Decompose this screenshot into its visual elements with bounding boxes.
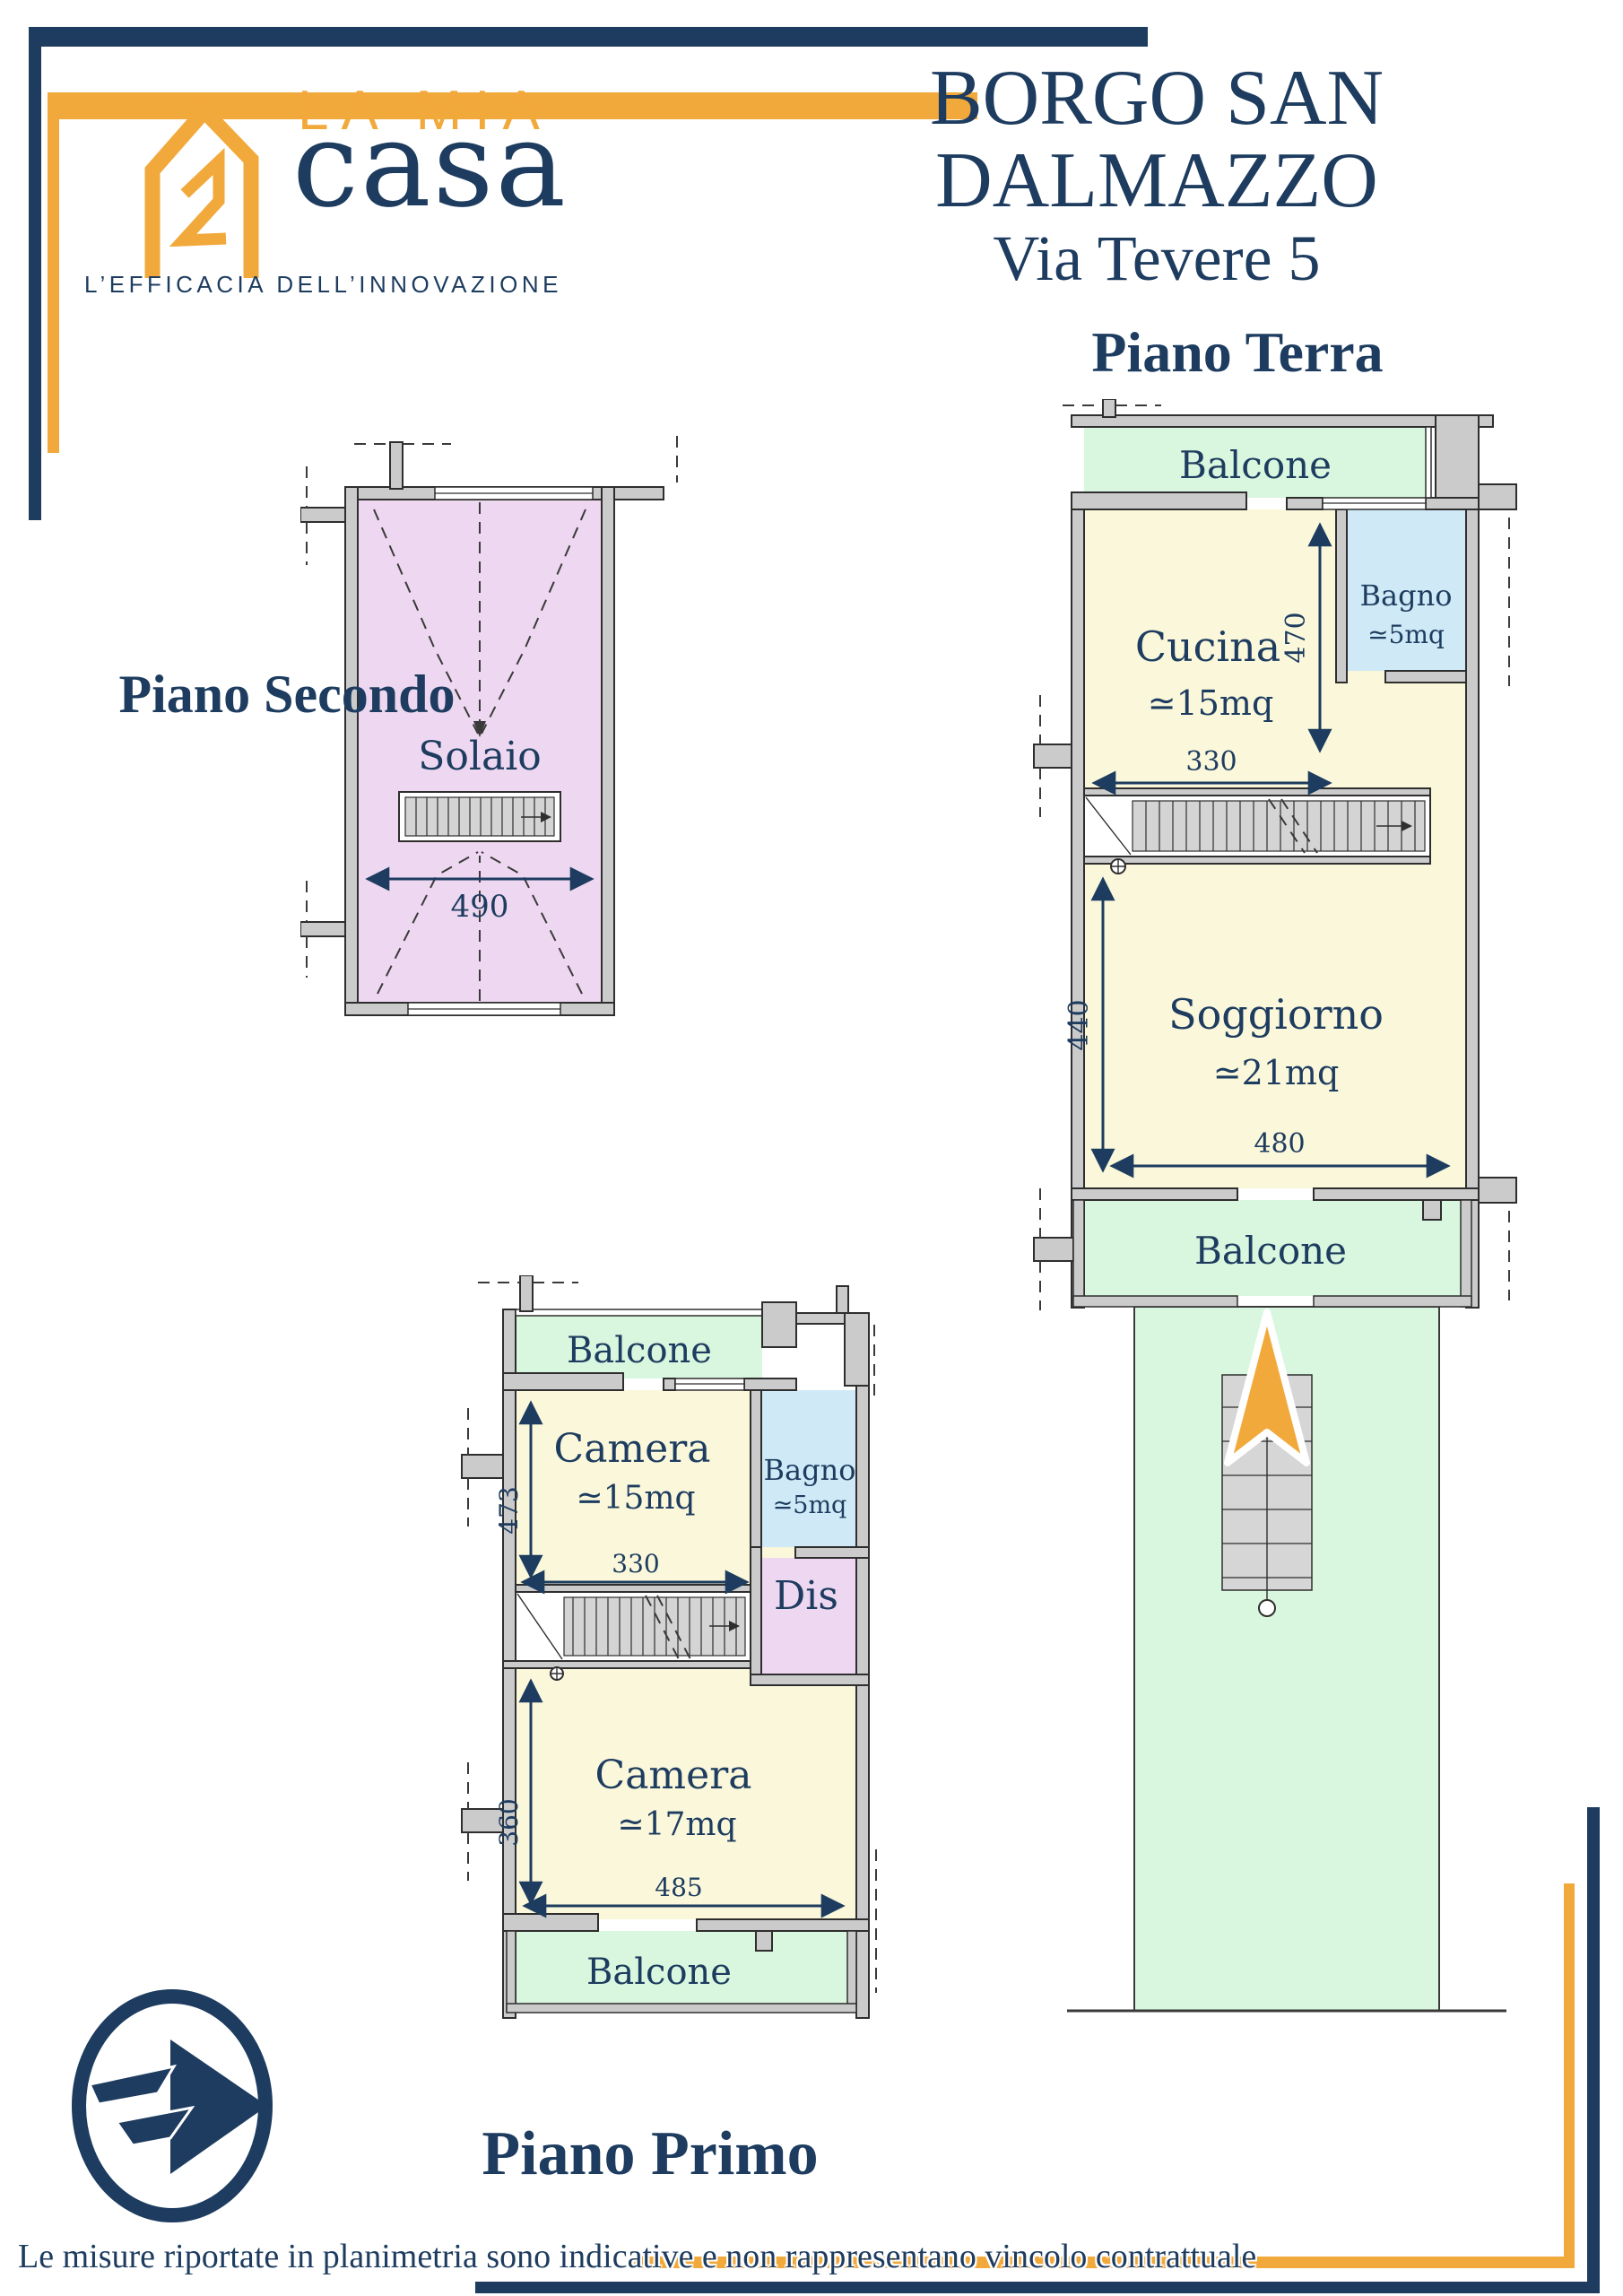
room-label-balcone-top: Balcone (567, 1330, 712, 1371)
room-size-value: 15mq (1176, 683, 1274, 723)
room-size-value: 15mq (603, 1480, 696, 1517)
room-label-balcone-bottom: Balcone (1194, 1229, 1347, 1273)
approx-symbol: ≃ (1213, 1053, 1242, 1092)
dim-330: 330 (612, 1549, 659, 1578)
footer-disclaimer: Le misure riportate in planimetria sono … (18, 2237, 1363, 2276)
dim-440: 440 (1063, 999, 1095, 1050)
compass-arrow-icon (65, 1984, 280, 2228)
frame-bottom-navy (475, 2282, 1600, 2293)
title-piano-secondo: Piano Secondo (94, 664, 480, 726)
approx-symbol: ≃ (576, 1480, 603, 1517)
logo-tagline: L’EFFICACIA DELL’INNOVAZIONE (84, 271, 562, 299)
house-icon (133, 88, 281, 281)
floor-plan-sheet: LA MIA casa L’EFFICACIA DELL’INNOVAZIONE… (0, 0, 1623, 2296)
room-label-balcone-bottom: Balcone (586, 1952, 732, 1993)
room-label-solaio: Solaio (418, 734, 542, 779)
room-size-cucina: ≃15mq (1148, 683, 1274, 723)
approx-symbol: ≃ (773, 1492, 794, 1519)
dim-360: 360 (494, 1798, 524, 1846)
room-size-value: 17mq (645, 1806, 737, 1843)
frame-right-navy (1587, 1807, 1600, 2293)
frame-top-navy (31, 27, 1148, 47)
frame-left-navy (29, 27, 41, 520)
room-label-cucina: Cucina (1135, 622, 1280, 671)
dim-470: 470 (1280, 612, 1312, 663)
room-size-soggiorno: ≃21mq (1213, 1053, 1340, 1092)
frame-left-orange (48, 92, 59, 453)
floor-plan-piano-secondo: 490 Solaio (300, 420, 686, 1048)
room-size-value: 5mq (1389, 620, 1445, 649)
room-label-dis: Dis (774, 1573, 838, 1619)
floor-plan-piano-primo: 473 330 360 485 Balcone Camera ≃15mq Bag… (444, 1275, 892, 2047)
room-label-bagno: Bagno (764, 1453, 856, 1487)
room-size-bagno: ≃5mq (773, 1492, 847, 1519)
approx-symbol: ≃ (1148, 683, 1176, 723)
title-piano-primo: Piano Primo (372, 2118, 928, 2190)
room-label-balcone-top: Balcone (1179, 443, 1332, 487)
approx-symbol: ≃ (1367, 620, 1388, 649)
staircase (503, 1585, 751, 1680)
staircase (1084, 788, 1430, 874)
windows (675, 1378, 744, 1390)
dim-330: 330 (1185, 746, 1237, 778)
dim-490: 490 (451, 889, 509, 925)
frame-right-orange (1564, 1883, 1575, 2268)
dim-485: 485 (655, 1873, 702, 1902)
page-subtitle: Via Tevere 5 (699, 223, 1614, 294)
logo-casa: casa (292, 106, 568, 224)
title-piano-terra: Piano Terra (1004, 319, 1471, 386)
dim-473: 473 (494, 1486, 524, 1534)
room-size-bagno: ≃5mq (1367, 620, 1445, 649)
approx-symbol: ≃ (617, 1806, 644, 1843)
staircase (399, 792, 560, 841)
room-label-camera1: Camera (554, 1426, 711, 1472)
room-size-camera2: ≃17mq (617, 1806, 736, 1843)
room-size-camera1: ≃15mq (576, 1480, 695, 1517)
room-size-value: 21mq (1242, 1053, 1340, 1092)
room-label-bagno: Bagno (1360, 578, 1453, 613)
room-size-value: 5mq (793, 1492, 846, 1519)
dim-480: 480 (1254, 1128, 1305, 1160)
sheet-header: BORGO SAN DALMAZZO Via Tevere 5 (699, 57, 1614, 294)
page-title: BORGO SAN DALMAZZO (699, 57, 1614, 223)
room-label-soggiorno: Soggiorno (1168, 990, 1384, 1039)
floor-plan-piano-terra: 470 330 440 480 Balcone Cucina ≃15mq Bag… (1018, 399, 1533, 2027)
room-label-camera2: Camera (595, 1752, 752, 1798)
